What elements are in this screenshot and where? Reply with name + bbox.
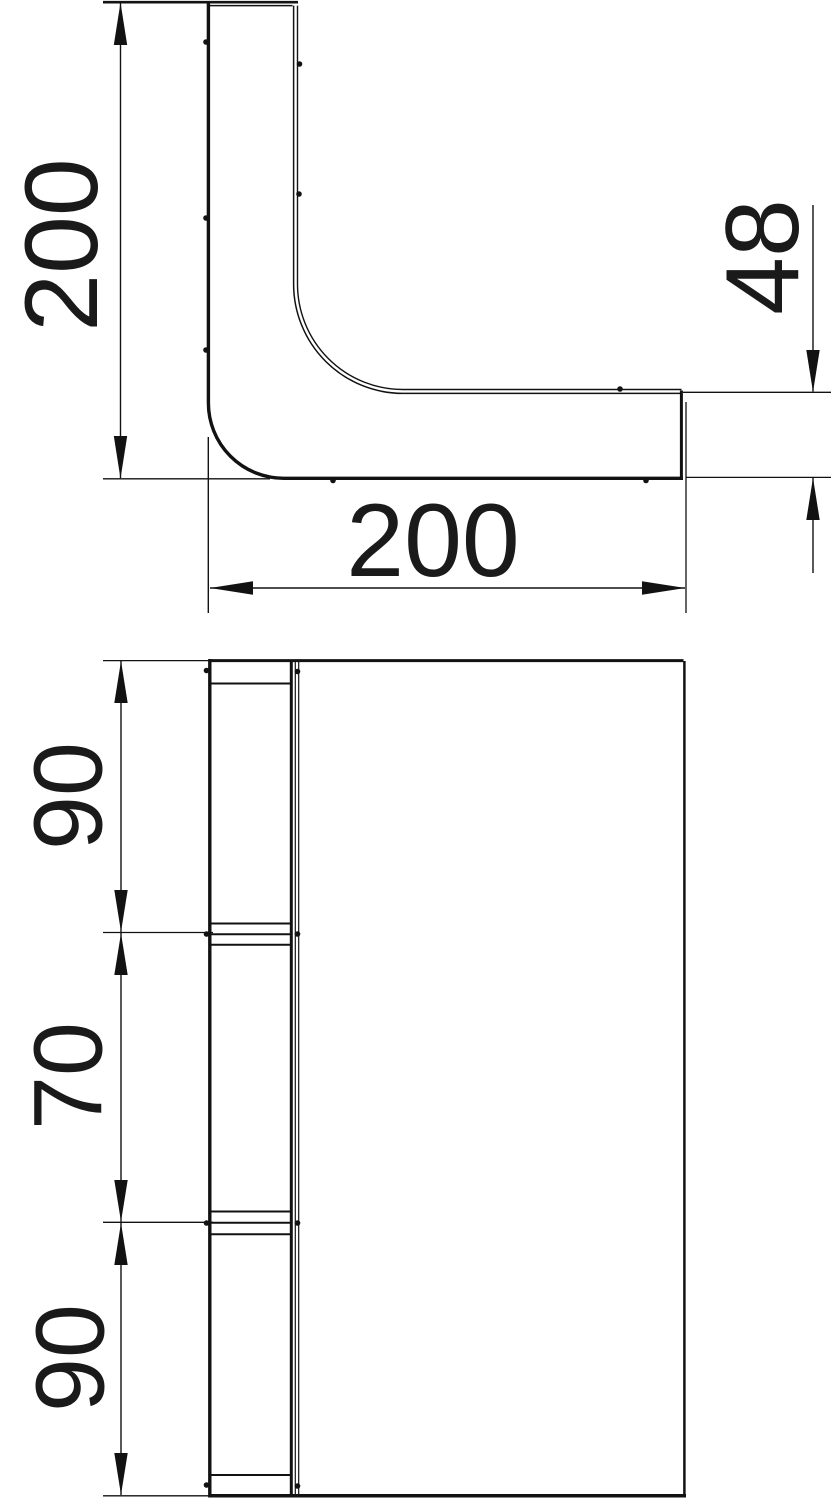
arrowhead-up (114, 3, 127, 46)
technical-drawing-canvas: 200 200 48 (0, 0, 835, 1500)
dim-side-height: 200 (4, 3, 270, 479)
arrowhead-up (806, 478, 819, 520)
dim-side-width: 200 (208, 437, 685, 613)
arrowhead-left (210, 581, 253, 594)
dim-side-height-label: 200 (4, 158, 120, 332)
side-view-rivet-dots (203, 39, 649, 483)
plan-rail-joint-band-2 (212, 1212, 291, 1235)
arrowhead-up-joint2 (114, 1223, 127, 1265)
plan-view-rivet-dots (204, 668, 301, 1489)
dim-plan-segment-top-label: 90 (14, 742, 123, 850)
arrowhead-down-joint2 (114, 1180, 127, 1222)
plan-view (204, 659, 686, 1498)
arrowhead-right (642, 581, 685, 594)
arrowhead-down-joint1 (114, 890, 127, 932)
dim-plan-segment-bottom-label: 90 (16, 1304, 125, 1412)
arrowhead-down (114, 436, 127, 479)
dim-plan-segment-middle-label: 70 (14, 1022, 123, 1130)
dim-side-width-label: 200 (346, 483, 520, 599)
dim-plan-segments: 90 70 90 (14, 661, 214, 1496)
dim-end-height: 48 (683, 199, 831, 573)
dim-end-height-label: 48 (705, 199, 821, 315)
arrowhead-down-bottom (114, 1453, 127, 1495)
side-inner-contour-outer-line (294, 6, 682, 394)
side-inner-contour-inner-line (298, 6, 682, 390)
arrowhead-up-top (114, 661, 127, 703)
arrowhead-down (806, 350, 819, 392)
plan-rail-joint-band-1 (212, 924, 291, 945)
drawing-svg: 200 200 48 (0, 0, 835, 1500)
arrowhead-up-joint1 (114, 933, 127, 975)
side-outer-profile (208, 2, 683, 478)
